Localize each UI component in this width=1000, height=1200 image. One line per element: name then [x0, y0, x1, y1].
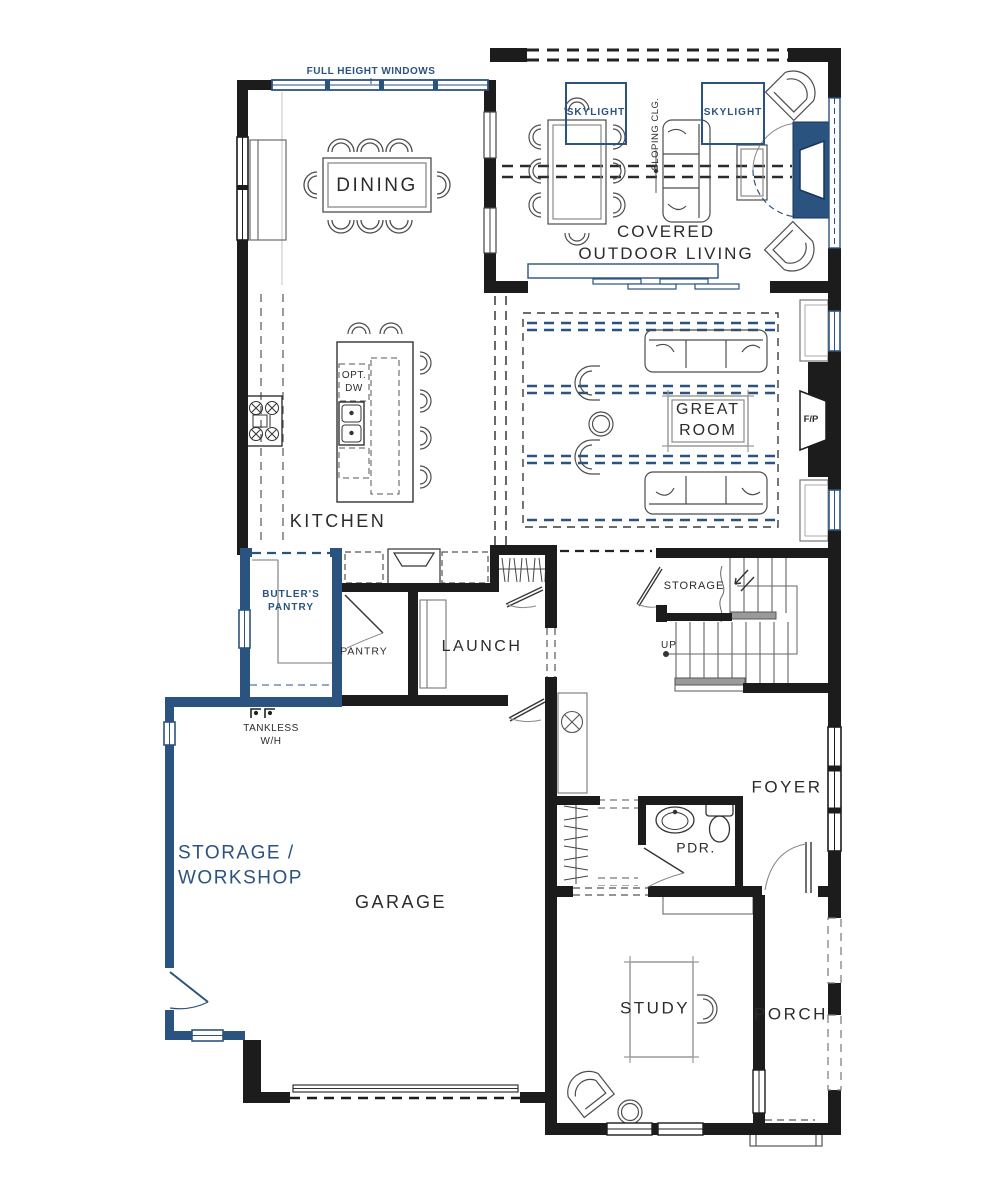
staircase	[663, 558, 797, 691]
powder-room-fixtures	[656, 803, 733, 842]
room-label-launch: LAUNCH	[442, 637, 523, 657]
room-label-covered-outdoor-living: COVERED OUTDOOR LIVING	[578, 221, 753, 265]
outdoor-fireplace	[753, 122, 838, 218]
butlers-pantry-window	[239, 610, 250, 648]
kitchen-sink	[388, 549, 440, 585]
pantry-door	[345, 595, 383, 648]
dining-sideboard	[250, 140, 286, 240]
front-door	[765, 842, 811, 893]
outdoor-living-right-window	[829, 98, 840, 248]
annotation-skylight-right: SKYLIGHT	[704, 107, 763, 120]
full-height-windows-band	[272, 78, 488, 90]
room-label-storage-under-stairs: STORAGE	[664, 580, 725, 594]
great-room-armchairs	[575, 366, 613, 474]
kitchen-counters	[261, 294, 283, 546]
garage-entry-door	[509, 699, 545, 722]
room-label-butlers-pantry: BUTLER'S PANTRY	[262, 588, 320, 614]
room-label-storage-workshop: STORAGE / WORKSHOP	[178, 841, 303, 890]
optional-blue-walls	[165, 548, 342, 1040]
room-label-garage: GARAGE	[355, 891, 447, 914]
room-label-dining: DINING	[336, 174, 418, 198]
annotation-fireplace-outdoor: F/P	[806, 161, 817, 178]
room-label-kitchen: KITCHEN	[290, 510, 387, 533]
outdoor-side-table	[737, 145, 767, 200]
coat-closet-hangers	[564, 800, 638, 886]
room-label-study: STUDY	[620, 997, 690, 1018]
annotation-sloping-ceiling: SLOPING CLG.	[650, 97, 662, 170]
mud-row-cabinets	[345, 549, 488, 585]
annotation-skylight-left: SKYLIGHT	[567, 107, 626, 120]
range-cooktop	[246, 396, 282, 446]
toilet-icon	[706, 803, 733, 842]
floor-plan: DINING COVERED OUTDOOR LIVING KITCHEN GR…	[0, 0, 1000, 1200]
launch-closet-door	[506, 587, 543, 608]
dining-left-window	[237, 137, 248, 240]
sink-icon	[656, 807, 694, 833]
annotation-full-height-windows: FULL HEIGHT WINDOWS	[307, 66, 436, 79]
floor-plan-drawing	[0, 0, 1000, 1200]
storage-under-stairs-door	[637, 567, 662, 607]
room-label-foyer: FOYER	[751, 776, 822, 797]
storage-workshop-door	[170, 972, 208, 1009]
multislide-door	[528, 264, 739, 289]
ceiling-fixture-icon	[562, 712, 583, 733]
tankless-water-heater-icon	[251, 709, 275, 718]
annotation-fireplace-great-room: F/P	[804, 414, 819, 426]
launch-closet-hangers	[499, 558, 551, 582]
study-entry-opening	[573, 886, 648, 897]
annotation-optional-dishwasher: OPT. DW	[342, 369, 366, 395]
room-label-powder-room: PDR.	[676, 839, 715, 857]
butlers-pantry-counter	[250, 560, 335, 685]
foyer-window	[828, 727, 841, 851]
hall-cabinet	[558, 693, 587, 793]
island-sink	[339, 402, 364, 445]
annotation-tankless-water-heater: TANKLESS W/H	[243, 722, 299, 748]
garage-door	[290, 1085, 520, 1098]
kitchen-island	[337, 323, 431, 502]
outdoor-living-screen-wall	[527, 50, 788, 60]
launch-opening	[545, 628, 557, 677]
room-label-great-room: GREAT ROOM	[676, 400, 740, 442]
annotation-stairs-up: UP	[661, 640, 677, 653]
room-label-pantry: PANTRY	[340, 645, 388, 658]
room-label-porch: PORCH	[754, 1003, 828, 1024]
